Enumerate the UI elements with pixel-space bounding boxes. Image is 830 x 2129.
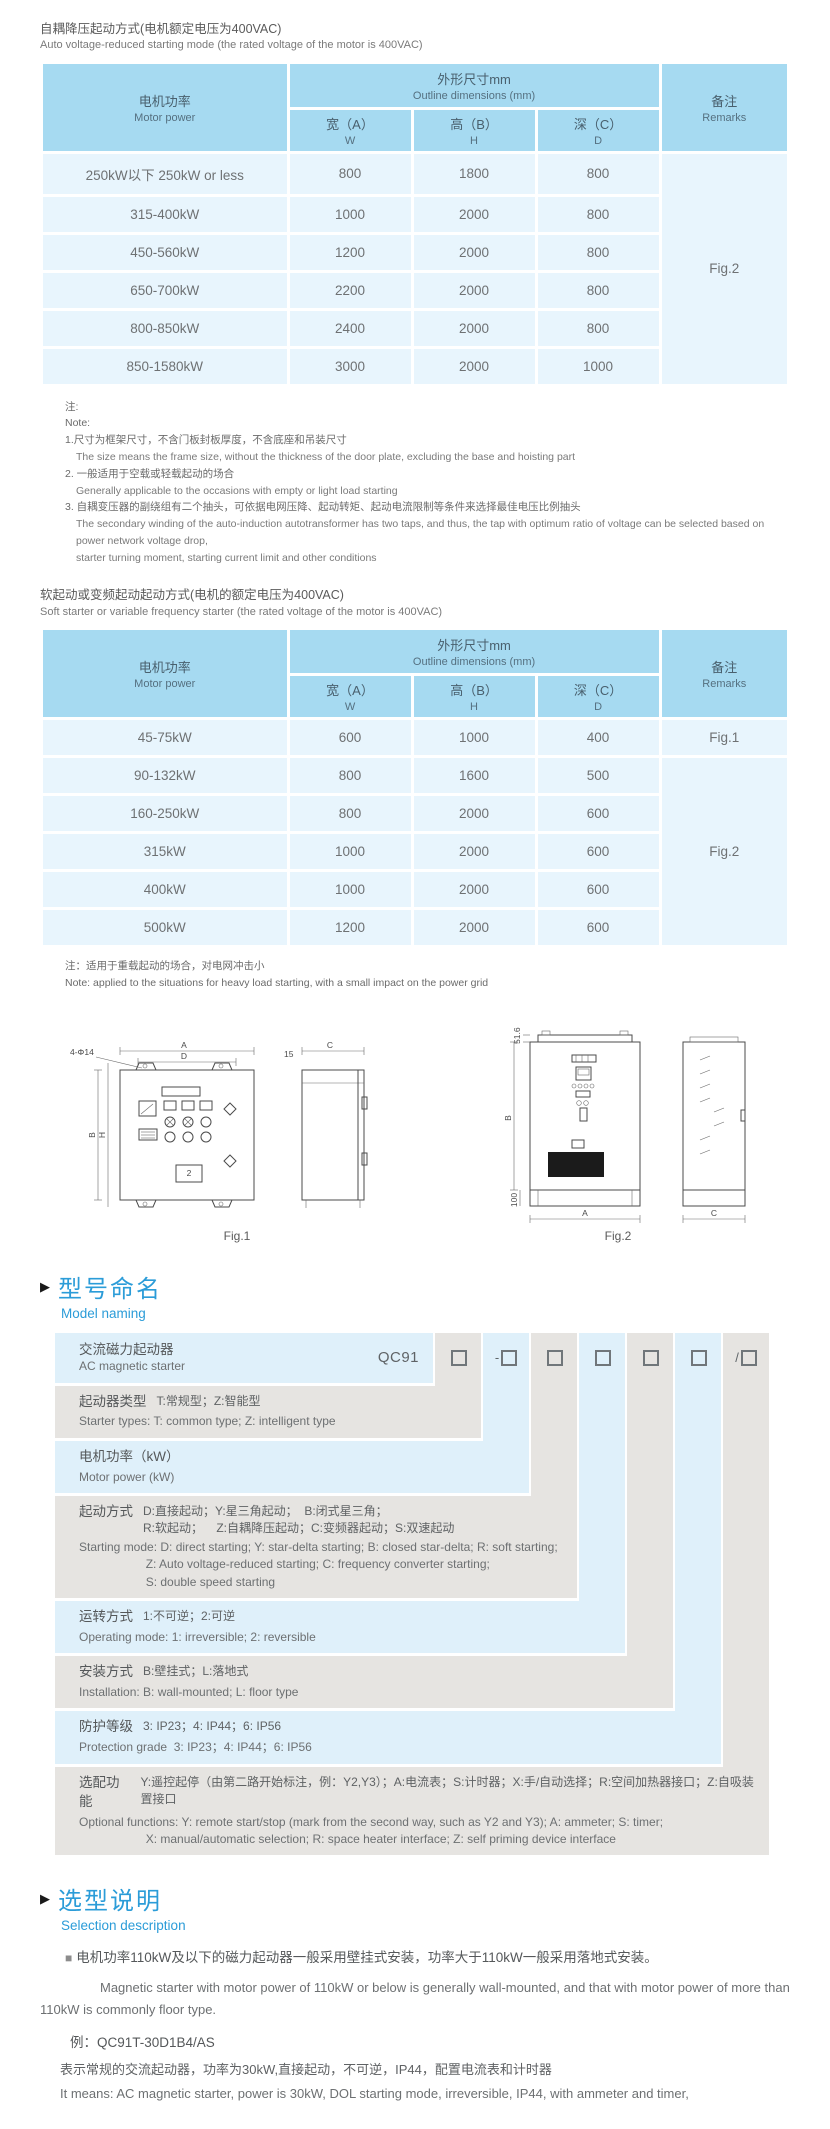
row-desc-en: Protection grade 3: IP23；4: IP44；6: IP56: [79, 1739, 711, 1756]
cell-power: 850-1580kW: [43, 349, 287, 384]
header-motor-power: 电机功率 Motor power: [43, 630, 287, 717]
model-code-strip-4: [579, 1333, 625, 1613]
cell-power: 315-400kW: [43, 197, 287, 232]
table-header: 电机功率 Motor power 外形尺寸mm Outline dimensio…: [43, 630, 787, 717]
cell-remark: Fig.1: [662, 720, 787, 755]
section1-title-zh: 自耦降压起动方式(电机额定电压为400VAC): [40, 20, 790, 38]
cell-width: 2200: [290, 273, 411, 308]
placeholder-box-icon: [643, 1350, 659, 1366]
placeholder-box-icon: [691, 1350, 707, 1366]
cell-height: 2000: [414, 349, 535, 384]
section2-title-en: Soft starter or variable frequency start…: [40, 605, 790, 620]
cell-width: 3000: [290, 349, 411, 384]
row-desc-en: Optional functions: Y: remote start/stop…: [79, 1814, 759, 1849]
cell-power: 160-250kW: [43, 796, 287, 831]
fig2-drawing: 51.6 B 100 A C: [468, 1022, 768, 1227]
cell-width: 1200: [290, 235, 411, 270]
product-name-zh: 交流磁力起动器: [79, 1342, 185, 1359]
row-label-zh: 防护等级: [79, 1718, 133, 1737]
header-outline-en: Outline dimensions (mm): [293, 90, 656, 102]
note-line: starter turning moment, starting current…: [65, 550, 790, 567]
selection-body: ■电机功率110kW及以下的磁力起动器一般采用壁挂式安装，功率大于110kW一般…: [40, 1947, 790, 2101]
row-desc-zh: 1:不可逆；2:可逆: [143, 1608, 235, 1625]
cell-power: 90-132kW: [43, 758, 287, 793]
cell-width: 1000: [290, 834, 411, 869]
model-naming-title-zh: 型号命名: [58, 1269, 162, 1304]
cell-width: 1200: [290, 910, 411, 945]
row-label-zh: 安装方式: [79, 1663, 133, 1682]
header-remarks-zh: 备注: [665, 91, 784, 110]
cell-height: 1000: [414, 720, 535, 755]
table-row: 45-75kW6001000400Fig.1: [43, 720, 787, 755]
note-line: Generally applicable to the occasions wi…: [65, 483, 790, 500]
header-motor-en: Motor power: [46, 112, 284, 124]
cell-depth: 800: [538, 197, 659, 232]
selection-p1-zh-text: 电机功率110kW及以下的磁力起动器一般采用壁挂式安装，功率大于110kW一般采…: [76, 1950, 658, 1965]
soft-starter-table: 电机功率 Motor power 外形尺寸mm Outline dimensio…: [40, 627, 790, 948]
cell-depth: 800: [538, 235, 659, 270]
figure-1: A D 4-Φ14 B H: [62, 1037, 412, 1243]
model-row-installation: 安装方式B:壁挂式；L:落地式 Installation: B: wall-mo…: [55, 1656, 673, 1708]
row-label-zh: 电机功率（kW）: [79, 1448, 180, 1467]
fig1-drawing: A D 4-Φ14 B H: [62, 1037, 412, 1227]
cell-depth: 800: [538, 273, 659, 308]
note-line: 2. 一般适用于空载或轻载起动的场合: [65, 466, 790, 483]
selection-example-en: It means: AC magnetic starter, power is …: [60, 2086, 790, 2101]
header-depth: 深（C）D: [538, 676, 659, 717]
cell-depth: 600: [538, 910, 659, 945]
header-remarks-en: Remarks: [665, 112, 784, 124]
fig2-dim-b: B: [503, 1114, 513, 1120]
fig1-dim-c: C: [327, 1040, 333, 1050]
header-height: 高（B）H: [414, 676, 535, 717]
box-prefix: /: [735, 1350, 739, 1365]
table1-body: 250kW以下 250kW or less8001800800Fig.2315-…: [43, 154, 787, 384]
cell-height: 2000: [414, 834, 535, 869]
model-code-strip-7: /: [723, 1333, 769, 1779]
row-desc-zh: B:壁挂式；L:落地式: [143, 1663, 248, 1680]
catalog-page: 自耦降压起动方式(电机额定电压为400VAC) Auto voltage-red…: [0, 0, 830, 2129]
cell-depth: 400: [538, 720, 659, 755]
selection-example-zh: 表示常规的交流起动器，功率为30kW,直接起动，不可逆，IP44，配置电流表和计…: [60, 2059, 790, 2078]
cell-depth: 600: [538, 872, 659, 907]
model-row-motor-power: 电机功率（kW） Motor power (kW): [55, 1441, 529, 1493]
header-depth: 深（C）D: [538, 110, 659, 151]
selection-title-en: Selection description: [61, 1918, 790, 1933]
model-row-starting-mode: 起动方式D:直接起动；Y:星三角起动； B:闭式星三角； R:软起动； Z:自耦…: [55, 1496, 577, 1598]
header-outline-zh: 外形尺寸mm: [293, 69, 656, 88]
model-row-operating-mode: 运转方式1:不可逆；2:可逆 Operating mode: 1: irreve…: [55, 1601, 625, 1653]
cell-power: 650-700kW: [43, 273, 287, 308]
cell-depth: 500: [538, 758, 659, 793]
cell-power: 315kW: [43, 834, 287, 869]
row-desc-en: Installation: B: wall-mounted; L: floor …: [79, 1684, 663, 1701]
fig1-dim-a: A: [181, 1040, 187, 1050]
note-line: 1.尺寸为框架尺寸，不含门板封板厚度，不含底座和吊装尺寸: [65, 432, 790, 449]
note-line: The secondary winding of the auto-induct…: [65, 516, 790, 550]
cell-width: 800: [290, 154, 411, 194]
model-code-strip-3: [531, 1333, 577, 1509]
model-row-product: 交流磁力起动器 AC magnetic starter QC91: [55, 1333, 433, 1383]
cell-power: 500kW: [43, 910, 287, 945]
cell-depth: 600: [538, 796, 659, 831]
cell-height: 1600: [414, 758, 535, 793]
selection-paragraph-zh: ■电机功率110kW及以下的磁力起动器一般采用壁挂式安装，功率大于110kW一般…: [65, 1947, 790, 1969]
auto-voltage-reduced-table: 电机功率 Motor power 外形尺寸mm Outline dimensio…: [40, 61, 790, 387]
row-desc-zh: T:常规型；Z:智能型: [157, 1393, 261, 1410]
cell-height: 2000: [414, 872, 535, 907]
cell-width: 1000: [290, 197, 411, 232]
header-outline-dims: 外形尺寸mm Outline dimensions (mm): [290, 64, 659, 107]
model-row-optional-functions: 选配功能Y:遥控起停（由第二路开始标注，例：Y2,Y3）；A:电流表；S:计时器…: [55, 1767, 769, 1856]
cell-depth: 1000: [538, 349, 659, 384]
cell-remark: Fig.2: [662, 758, 787, 945]
placeholder-box-icon: [741, 1350, 757, 1366]
note-line: Note:: [65, 415, 790, 432]
cell-height: 2000: [414, 273, 535, 308]
model-naming-header: ▶ 型号命名 Model naming: [40, 1269, 790, 1321]
model-code-strip-6: [675, 1333, 721, 1724]
cell-width: 600: [290, 720, 411, 755]
fig2-dim-516: 51.6: [512, 1027, 522, 1044]
header-height: 高（B）H: [414, 110, 535, 151]
square-bullet-icon: ■: [65, 1951, 72, 1965]
header-outline-dims: 外形尺寸mm Outline dimensions (mm): [290, 630, 659, 673]
placeholder-box-icon: [595, 1350, 611, 1366]
cell-depth: 800: [538, 154, 659, 194]
header-width: 宽（A）W: [290, 110, 411, 151]
fig2-label: Fig.2: [605, 1229, 632, 1243]
row-desc-en: Starting mode: D: direct starting; Y: st…: [79, 1539, 567, 1591]
cell-height: 2000: [414, 796, 535, 831]
row-label-zh: 选配功能: [79, 1774, 130, 1812]
model-naming-title-en: Model naming: [61, 1306, 790, 1321]
selection-title-zh: 选型说明: [58, 1881, 162, 1916]
header-remarks: 备注 Remarks: [662, 630, 787, 717]
cell-power: 400kW: [43, 872, 287, 907]
fig1-dim-d: D: [181, 1051, 187, 1061]
cell-power: 250kW以下 250kW or less: [43, 154, 287, 194]
row-label-zh: 起动方式: [79, 1503, 133, 1522]
fig2-dim-100: 100: [509, 1192, 519, 1206]
fig1-panel-label: 2: [187, 1168, 192, 1178]
cell-height: 1800: [414, 154, 535, 194]
model-code: QC91: [378, 1349, 419, 1366]
selection-description-header: ▶ 选型说明 Selection description: [40, 1881, 790, 1933]
cell-power: 450-560kW: [43, 235, 287, 270]
fig1-dim-b: B: [87, 1131, 97, 1137]
model-code-strip-2: -: [483, 1333, 529, 1453]
note-line: 3. 自耦变压器的副绕组有二个抽头，可依据电网压降、起动转矩、起动电流限制等条件…: [65, 499, 790, 516]
header-width: 宽（A）W: [290, 676, 411, 717]
figure-2: 51.6 B 100 A C: [468, 1022, 768, 1243]
cell-height: 2000: [414, 311, 535, 346]
model-row-starter-type: 起动器类型T:常规型；Z:智能型 Starter types: T: commo…: [55, 1386, 481, 1438]
table-row: 90-132kW8001600500Fig.2: [43, 758, 787, 793]
header-motor-power: 电机功率 Motor power: [43, 64, 287, 151]
section2-title-zh: 软起动或变频起动起动方式(电机的额定电压为400VAC): [40, 586, 790, 604]
model-naming-diagram: - / 交流磁力起动器 AC magnetic starter QC91 起动器…: [55, 1333, 769, 1856]
table-header: 电机功率 Motor power 外形尺寸mm Outline dimensio…: [43, 64, 787, 151]
cell-width: 800: [290, 758, 411, 793]
fig1-hole-callout: 4-Φ14: [70, 1047, 94, 1057]
row-desc-zh: Y:遥控起停（由第二路开始标注，例：Y2,Y3）；A:电流表；S:计时器；X:手…: [140, 1774, 759, 1808]
note-line: 注:: [65, 399, 790, 416]
section-arrow-icon: ▶: [40, 1280, 50, 1293]
placeholder-box-icon: [451, 1350, 467, 1366]
table-row: 250kW以下 250kW or less8001800800Fig.2: [43, 154, 787, 194]
note-line: Note: applied to the situations for heav…: [65, 975, 790, 992]
row-desc-en: Starter types: T: common type; Z: intell…: [79, 1413, 471, 1430]
row-desc-zh: D:直接起动；Y:星三角起动； B:闭式星三角； R:软起动； Z:自耦降压起动…: [143, 1503, 454, 1537]
selection-paragraph-en: Magnetic starter with motor power of 110…: [40, 1977, 790, 2021]
cell-width: 800: [290, 796, 411, 831]
cell-power: 800-850kW: [43, 311, 287, 346]
fig2-dim-a: A: [582, 1208, 588, 1218]
table2-body: 45-75kW6001000400Fig.190-132kW8001600500…: [43, 720, 787, 945]
row-label-zh: 起动器类型: [79, 1393, 147, 1412]
table2-note: 注：适用于重载起动的场合，对电网冲击小 Note: applied to the…: [65, 958, 790, 992]
cell-height: 2000: [414, 235, 535, 270]
cell-height: 2000: [414, 197, 535, 232]
fig1-label: Fig.1: [224, 1229, 251, 1243]
placeholder-box-icon: [547, 1350, 563, 1366]
section-arrow-icon: ▶: [40, 1892, 50, 1905]
model-row-protection-grade: 防护等级3: IP23；4: IP44；6: IP56 Protection g…: [55, 1711, 721, 1763]
header-remarks: 备注 Remarks: [662, 64, 787, 151]
note-line: The size means the frame size, without t…: [65, 449, 790, 466]
section1-title-en: Auto voltage-reduced starting mode (the …: [40, 38, 790, 53]
product-name-en: AC magnetic starter: [79, 1359, 185, 1374]
row-label-zh: 运转方式: [79, 1608, 133, 1627]
row-desc-en: Motor power (kW): [79, 1469, 519, 1486]
cell-width: 2400: [290, 311, 411, 346]
fig1-dim-h: H: [97, 1132, 107, 1138]
row-desc-zh: 3: IP23；4: IP44；6: IP56: [143, 1718, 281, 1735]
cell-depth: 600: [538, 834, 659, 869]
header-motor-zh: 电机功率: [46, 91, 284, 110]
selection-example-code: 例：QC91T-30D1B4/AS: [70, 2031, 790, 2051]
row-desc-en: Operating mode: 1: irreversible; 2: reve…: [79, 1629, 615, 1646]
fig1-dim-15: 15: [284, 1049, 294, 1059]
cell-depth: 800: [538, 311, 659, 346]
box-prefix: -: [495, 1350, 499, 1365]
cell-height: 2000: [414, 910, 535, 945]
placeholder-box-icon: [501, 1350, 517, 1366]
table1-notes: 注: Note: 1.尺寸为框架尺寸，不含门板封板厚度，不含底座和吊装尺寸 Th…: [65, 399, 790, 567]
model-code-strip-5: [627, 1333, 673, 1669]
cell-remark: Fig.2: [662, 154, 787, 384]
cell-power: 45-75kW: [43, 720, 287, 755]
figures: A D 4-Φ14 B H: [40, 1022, 790, 1243]
fig2-dim-c: C: [711, 1208, 717, 1218]
cell-width: 1000: [290, 872, 411, 907]
note-line: 注：适用于重载起动的场合，对电网冲击小: [65, 958, 790, 975]
